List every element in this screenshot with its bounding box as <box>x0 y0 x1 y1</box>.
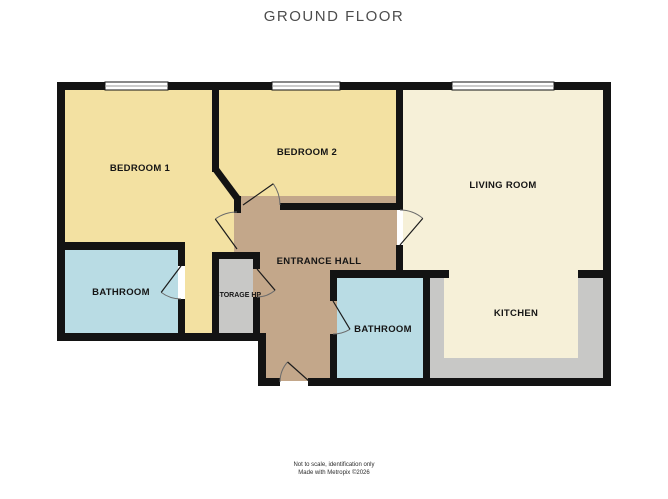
wall-segment <box>253 297 260 341</box>
wall-segment <box>57 242 185 250</box>
wall-segment <box>330 334 337 386</box>
window-living-room <box>452 82 554 90</box>
wall-segment <box>57 333 266 341</box>
wall-segment <box>234 196 241 213</box>
wall-segment <box>178 299 185 341</box>
label-bedroom-1: BEDROOM 1 <box>110 163 171 174</box>
footer-line-1: Not to scale, identification only <box>0 461 668 469</box>
wall-segment <box>280 203 403 210</box>
wall-segment <box>330 270 449 278</box>
footer-line-2: Made with Metropix ©2026 <box>0 469 668 477</box>
label-entrance-hall: ENTRANCE HALL <box>277 256 362 267</box>
footer-disclaimer: Not to scale, identification only Made w… <box>0 461 668 477</box>
wall-segment <box>330 378 611 386</box>
wall-segment <box>212 252 260 259</box>
wall-segment <box>330 278 337 301</box>
wall-segment <box>258 378 280 386</box>
window-bedroom-1 <box>105 82 168 90</box>
floorplan-page: GROUND FLOOR <box>0 0 668 499</box>
wall-segment <box>253 252 260 269</box>
label-living-room: LIVING ROOM <box>469 180 536 191</box>
floorplan-canvas: BEDROOM 1 BEDROOM 2 LIVING ROOM BATHROOM… <box>0 0 668 499</box>
wall-segment <box>178 242 185 266</box>
wall-segment <box>423 270 430 378</box>
wall-segment <box>57 82 65 341</box>
label-bedroom-2: BEDROOM 2 <box>277 147 337 158</box>
label-bathroom-2: BATHROOM <box>354 324 412 335</box>
label-storage: STORAGE HP <box>215 292 261 299</box>
window-bedroom-2 <box>272 82 340 90</box>
wall-segment <box>212 82 219 172</box>
wall-segment <box>578 270 611 278</box>
label-kitchen: KITCHEN <box>494 308 538 319</box>
wall-segment <box>396 82 403 210</box>
label-bathroom-1: BATHROOM <box>92 287 150 298</box>
wall-segment <box>603 82 611 386</box>
